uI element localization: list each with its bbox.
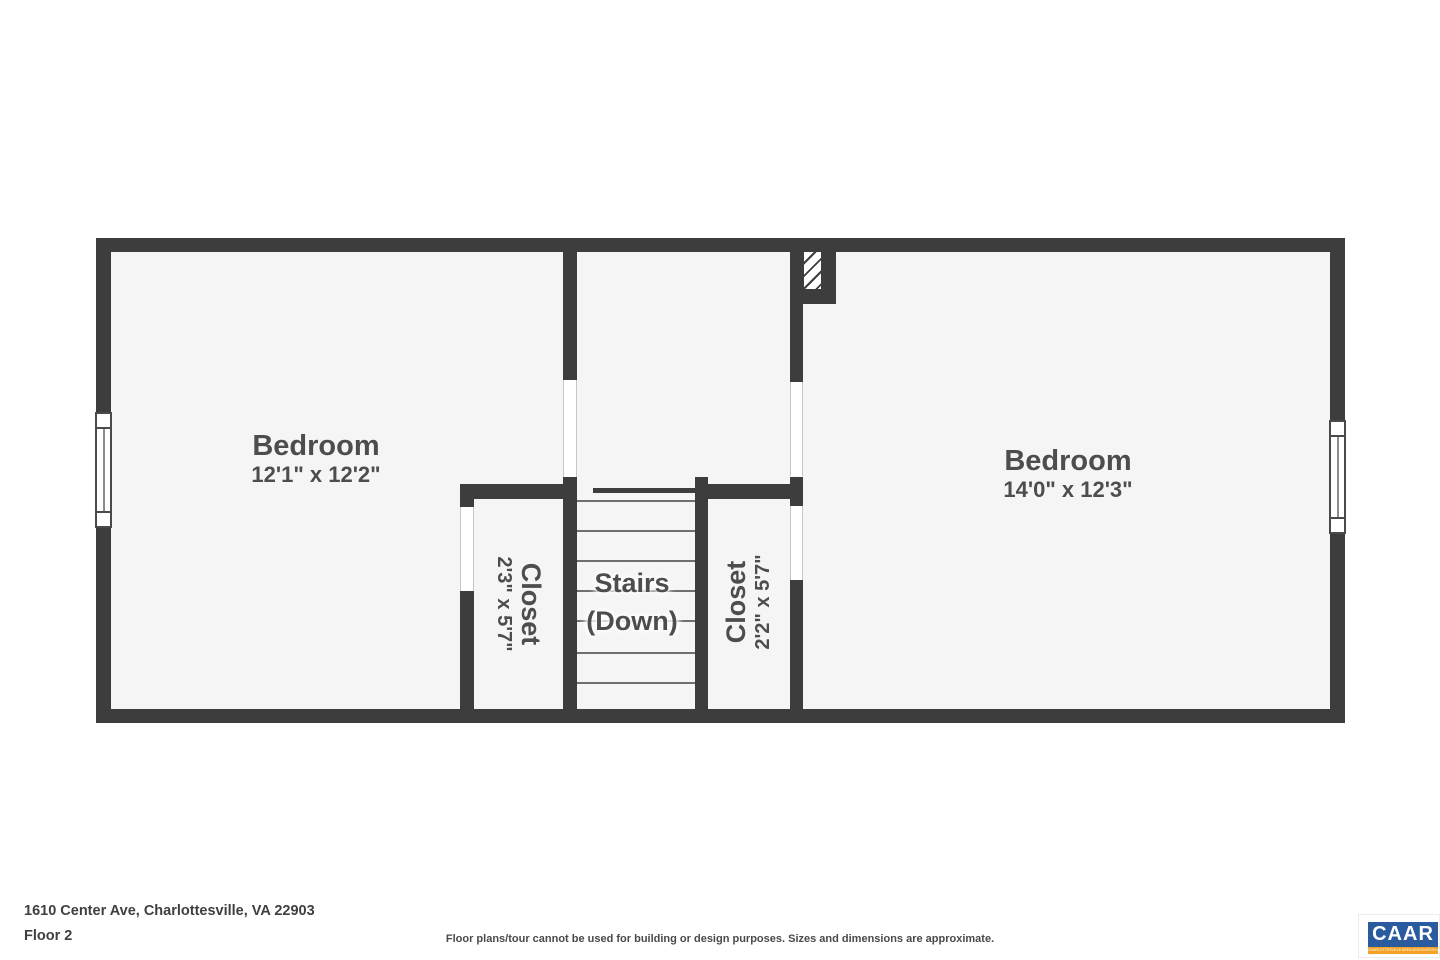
stairs-label-line2: (Down) (562, 602, 702, 640)
chimney-bottom-wall (790, 289, 836, 304)
closet-right-label-group: Closet 2'2" x 5'7" (721, 554, 775, 649)
wall-closet-left-top (460, 484, 577, 499)
disclaimer-text: Floor plans/tour cannot be used for buil… (0, 933, 1440, 945)
bedroom-right-dimensions: 14'0" x 12'3" (918, 477, 1218, 503)
door-opening-closet-right (790, 506, 803, 580)
window-pane (97, 427, 110, 513)
wall-bedroom-left-east-upper (563, 252, 577, 380)
wall-closet-right-top (695, 484, 803, 499)
caar-logo: CAAR CHARLOTTESVILLE AREA ASSOCIATION of… (1358, 914, 1440, 958)
closet-left-label: Closet (516, 556, 546, 651)
wall-outer-top (96, 238, 1345, 252)
stair-top-edge (593, 488, 695, 493)
window-symbol-right (1329, 420, 1346, 534)
floorplan-page: Bedroom 12'1" x 12'2" Bedroom 14'0" x 12… (0, 0, 1440, 960)
stair-tread (577, 530, 695, 532)
bedroom-left-dimensions: 12'1" x 12'2" (166, 462, 466, 488)
caar-logo-tagline: CHARLOTTESVILLE AREA ASSOCIATION of REAL… (1368, 947, 1438, 954)
stair-tread (577, 652, 695, 654)
stair-tread (577, 500, 695, 502)
stairs-label-line1: Stairs (562, 564, 702, 602)
closet-right-dimensions: 2'2" x 5'7" (751, 554, 775, 649)
door-opening-closet-left (460, 507, 474, 591)
door-opening-bedroom-right (790, 382, 803, 476)
wall-outer-bottom (96, 709, 1345, 723)
window-pane (1331, 435, 1344, 519)
property-address: 1610 Center Ave, Charlottesville, VA 229… (24, 903, 315, 919)
stair-tread (577, 560, 695, 562)
caar-logo-text: CAAR (1368, 922, 1438, 947)
closet-left-label-group: Closet 2'3" x 5'7" (492, 556, 546, 651)
bedroom-left-label: Bedroom (166, 430, 466, 462)
closet-right-label: Closet (721, 554, 751, 649)
bedroom-right-label-group: Bedroom 14'0" x 12'3" (918, 445, 1218, 503)
door-opening-bedroom-left (563, 380, 577, 477)
bedroom-right-label: Bedroom (918, 445, 1218, 477)
stairs-label: Stairs (Down) (562, 564, 702, 640)
bedroom-left-label-group: Bedroom 12'1" x 12'2" (166, 430, 466, 488)
window-symbol-left (95, 412, 112, 528)
closet-left-dimensions: 2'3" x 5'7" (492, 556, 516, 651)
stair-tread (577, 682, 695, 684)
chimney-hatch-icon (802, 250, 823, 291)
